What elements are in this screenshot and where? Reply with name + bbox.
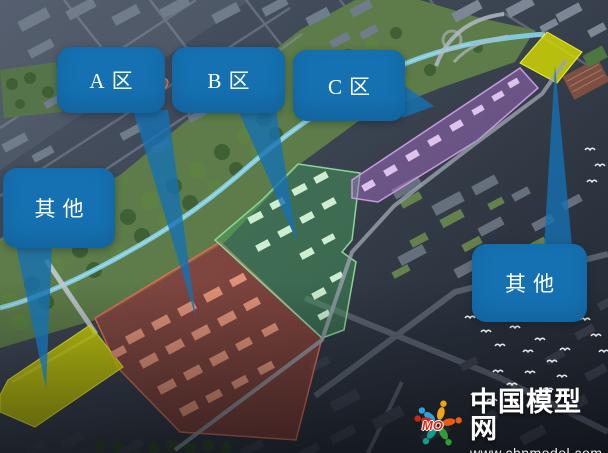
other-left-label: 其他 xyxy=(35,193,91,223)
other-left-callout: 其他 xyxy=(3,168,115,248)
chnmodel-logo-icon: MO xyxy=(410,396,466,452)
zone-b-label: B区 xyxy=(207,65,256,95)
site-url: www.chnmodel.com xyxy=(470,446,608,453)
aerial-site-plan-image: A区 B区 C区 其他 其他 MO 中国模型网 www.chnmodel.com xyxy=(0,0,608,453)
zone-c-label: C区 xyxy=(328,71,377,101)
zone-b-callout: B区 xyxy=(172,47,285,113)
logo-mo-text: MO xyxy=(422,418,443,433)
zone-a-callout: A区 xyxy=(57,47,165,113)
watermark-text: 中国模型网 www.chnmodel.com xyxy=(470,389,608,453)
site-name: 中国模型网 xyxy=(470,389,608,443)
other-right-callout: 其他 xyxy=(472,244,587,322)
zone-c-callout: C区 xyxy=(293,50,405,121)
watermark: MO 中国模型网 www.chnmodel.com xyxy=(410,395,608,453)
zone-a-label: A区 xyxy=(89,65,139,95)
other-right-label: 其他 xyxy=(505,268,561,298)
